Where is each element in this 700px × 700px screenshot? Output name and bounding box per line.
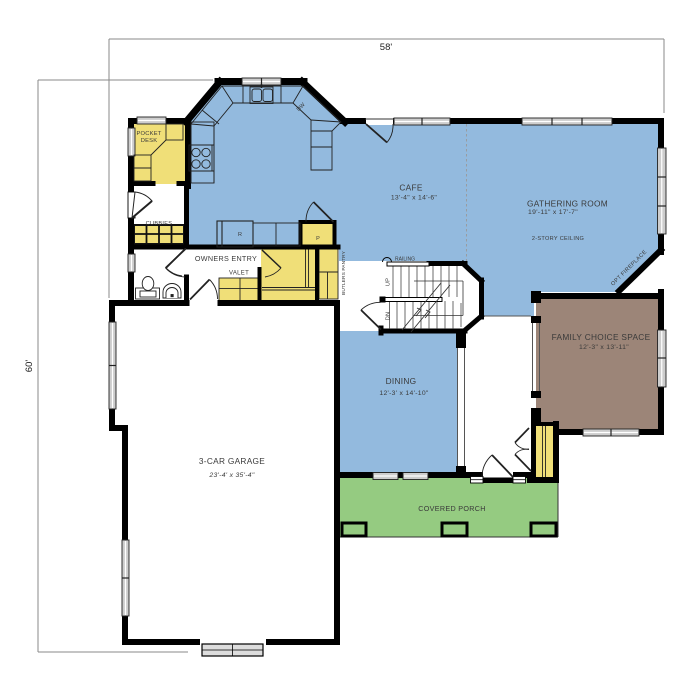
svg-text:POCKET: POCKET	[136, 131, 161, 137]
svg-text:CUBBIES: CUBBIES	[146, 221, 173, 227]
svg-text:P: P	[316, 236, 320, 242]
svg-text:UP: UP	[386, 278, 392, 286]
svg-text:RAILING: RAILING	[395, 257, 415, 263]
svg-text:58': 58'	[380, 42, 393, 53]
svg-text:VALET: VALET	[229, 271, 249, 277]
svg-text:DINING: DINING	[386, 376, 417, 386]
svg-text:CAFE: CAFE	[399, 183, 422, 193]
svg-text:COVERED PORCH: COVERED PORCH	[418, 504, 485, 513]
svg-text:13'-4" x 14'-6": 13'-4" x 14'-6"	[391, 195, 438, 202]
svg-text:OWNERS ENTRY: OWNERS ENTRY	[195, 254, 257, 263]
svg-text:60': 60'	[24, 360, 35, 373]
svg-text:R: R	[238, 232, 242, 238]
svg-text:23'-4' x 35'-4": 23'-4' x 35'-4"	[208, 472, 254, 479]
svg-text:12'-3" x 13'-11": 12'-3" x 13'-11"	[579, 344, 629, 351]
svg-text:GATHERING ROOM: GATHERING ROOM	[527, 199, 608, 209]
svg-text:DESK: DESK	[141, 138, 158, 144]
svg-text:DN: DN	[386, 312, 392, 321]
svg-text:12'-3' x 14'-10": 12'-3' x 14'-10"	[379, 390, 429, 397]
svg-text:FAMILY CHOICE SPACE: FAMILY CHOICE SPACE	[552, 332, 651, 342]
svg-text:2-STORY CEILING: 2-STORY CEILING	[532, 236, 584, 242]
svg-text:BUTLERS PANTRY: BUTLERS PANTRY	[341, 250, 347, 295]
svg-text:3-CAR GARAGE: 3-CAR GARAGE	[199, 456, 265, 466]
svg-text:19'-11" x 17'-7": 19'-11" x 17'-7"	[528, 209, 578, 216]
